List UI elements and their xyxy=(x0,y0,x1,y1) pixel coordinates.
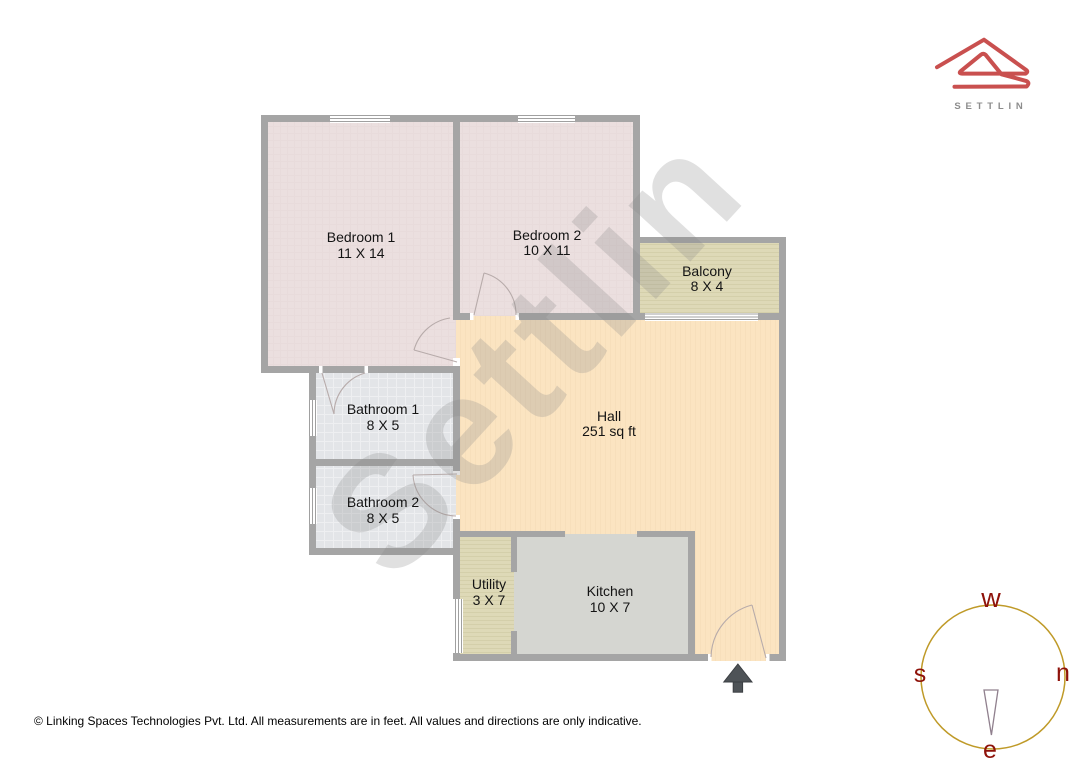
svg-text:8 X 4: 8 X 4 xyxy=(691,278,724,294)
svg-text:10 X 7: 10 X 7 xyxy=(590,599,631,615)
svg-text:Kitchen: Kitchen xyxy=(587,583,634,599)
svg-text:Utility: Utility xyxy=(472,576,506,592)
svg-text:10 X 11: 10 X 11 xyxy=(523,242,570,258)
svg-text:3 X 7: 3 X 7 xyxy=(473,592,506,608)
svg-text:Bathroom 1: Bathroom 1 xyxy=(347,401,420,417)
svg-text:Bedroom 2: Bedroom 2 xyxy=(513,227,582,243)
svg-text:s: s xyxy=(914,660,927,688)
svg-text:n: n xyxy=(1056,659,1070,687)
svg-text:SETTLIN: SETTLIN xyxy=(954,101,1027,112)
svg-text:© Linking Spaces Technologies: © Linking Spaces Technologies Pvt. Ltd. … xyxy=(34,714,642,728)
svg-text:251 sq ft: 251 sq ft xyxy=(582,423,636,439)
svg-text:Bathroom 2: Bathroom 2 xyxy=(347,494,420,510)
svg-text:e: e xyxy=(983,736,997,764)
svg-text:8 X 5: 8 X 5 xyxy=(367,510,400,526)
svg-text:11 X 14: 11 X 14 xyxy=(337,245,384,261)
svg-text:8 X 5: 8 X 5 xyxy=(367,417,400,433)
svg-text:Bedroom 1: Bedroom 1 xyxy=(327,229,396,245)
svg-text:Balcony: Balcony xyxy=(682,263,732,279)
svg-text:w: w xyxy=(980,583,1001,613)
svg-text:Hall: Hall xyxy=(597,408,621,424)
